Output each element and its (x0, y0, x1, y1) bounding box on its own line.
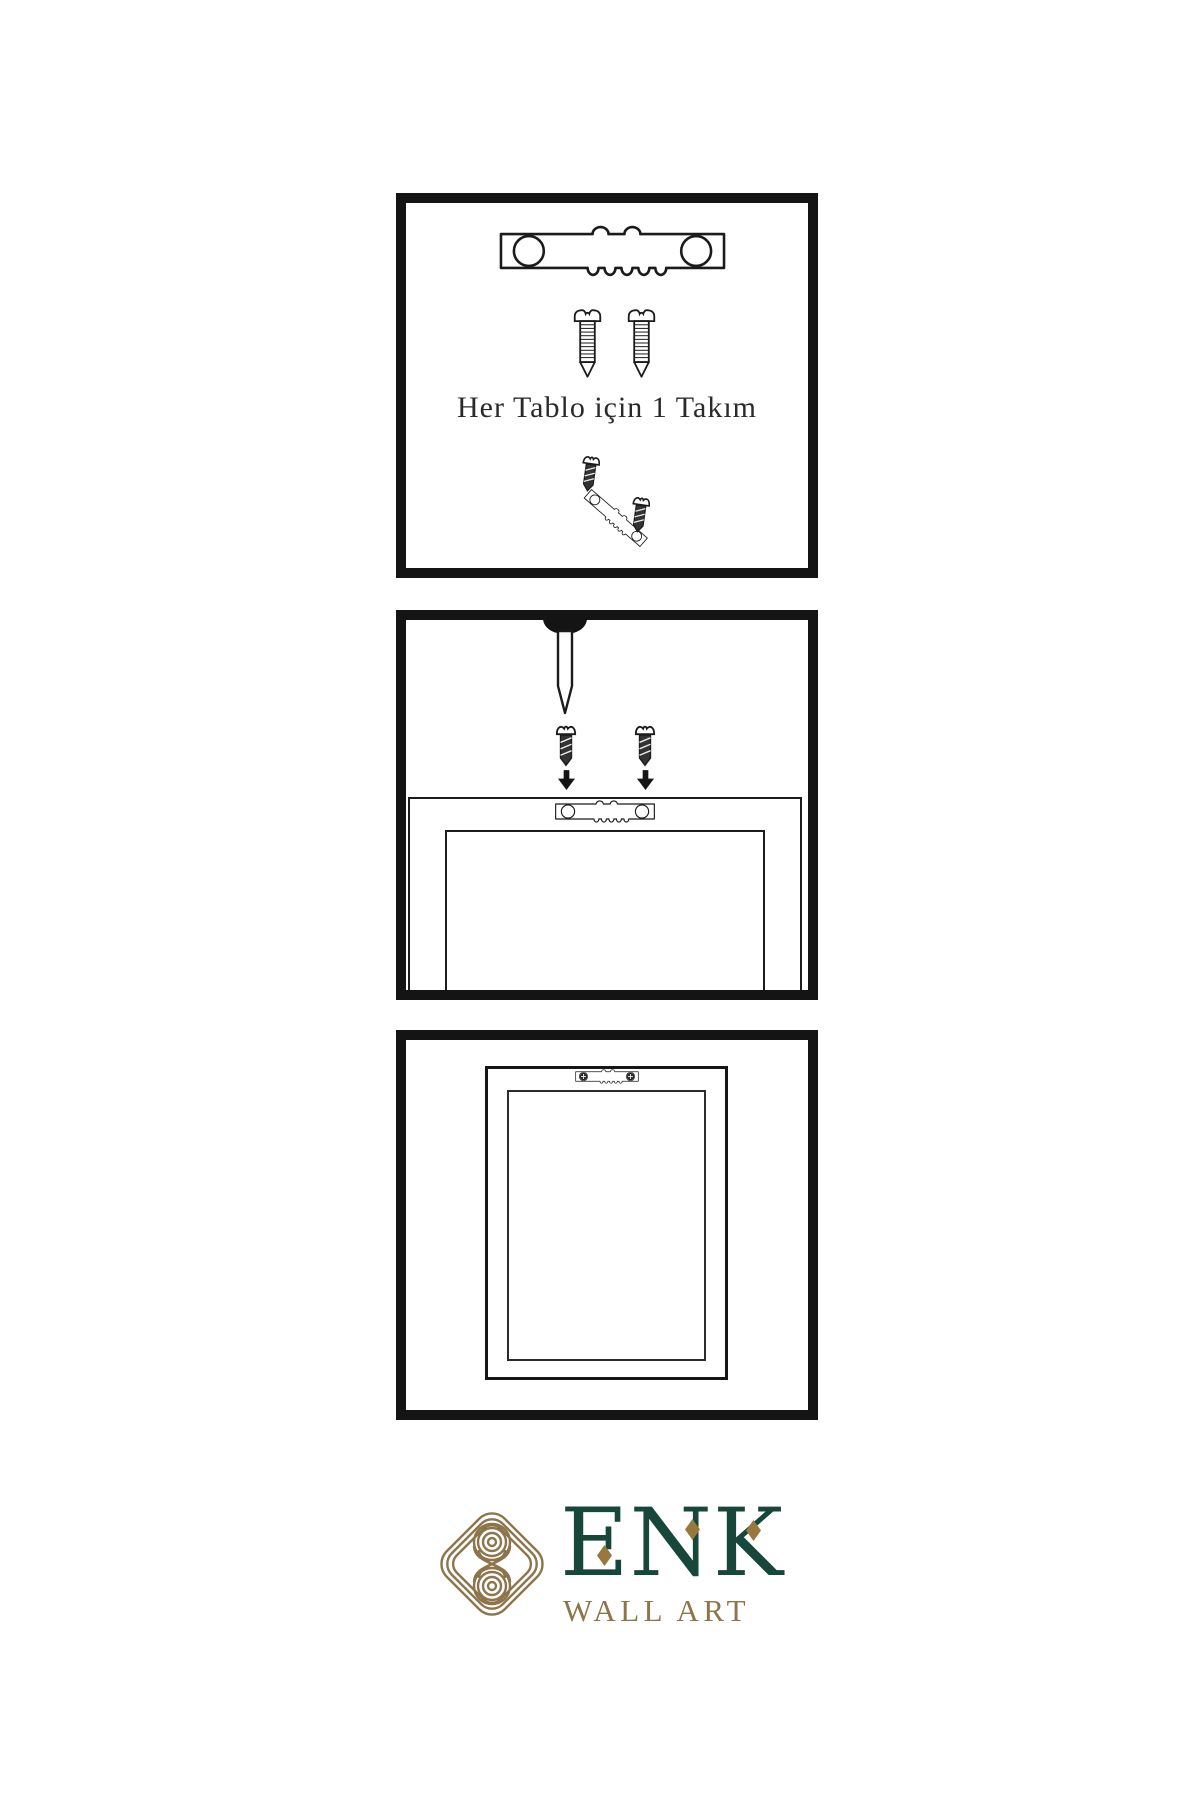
screw-icon (634, 723, 656, 771)
screw-icon (626, 306, 657, 380)
step2-panel (396, 610, 818, 1000)
brand-name: ENK (560, 1497, 784, 1591)
wall-nail-icon (542, 618, 588, 718)
step1-panel: Her Tablo için 1 Takım (396, 193, 818, 578)
screw-icon (572, 306, 603, 380)
brand-subtitle: WALL ART (563, 1593, 750, 1629)
frame-back-inner-outline (445, 830, 765, 990)
screw-icon (555, 723, 577, 771)
knot-logo-icon (436, 1500, 548, 1628)
mounted-sawtooth-hanger-icon (574, 1069, 640, 1084)
step1-caption: Her Tablo için 1 Takım (406, 391, 808, 425)
instruction-sheet: Her Tablo için 1 Takım (0, 0, 1200, 1800)
step3-panel (396, 1030, 818, 1420)
sawtooth-hanger-icon (553, 800, 657, 823)
down-arrow-icon (558, 770, 575, 791)
sawtooth-hanger-icon (495, 225, 730, 277)
screw-into-hanger-icon (556, 449, 668, 555)
mounted-frame-inner-outline (507, 1090, 706, 1361)
down-arrow-icon (637, 770, 654, 791)
